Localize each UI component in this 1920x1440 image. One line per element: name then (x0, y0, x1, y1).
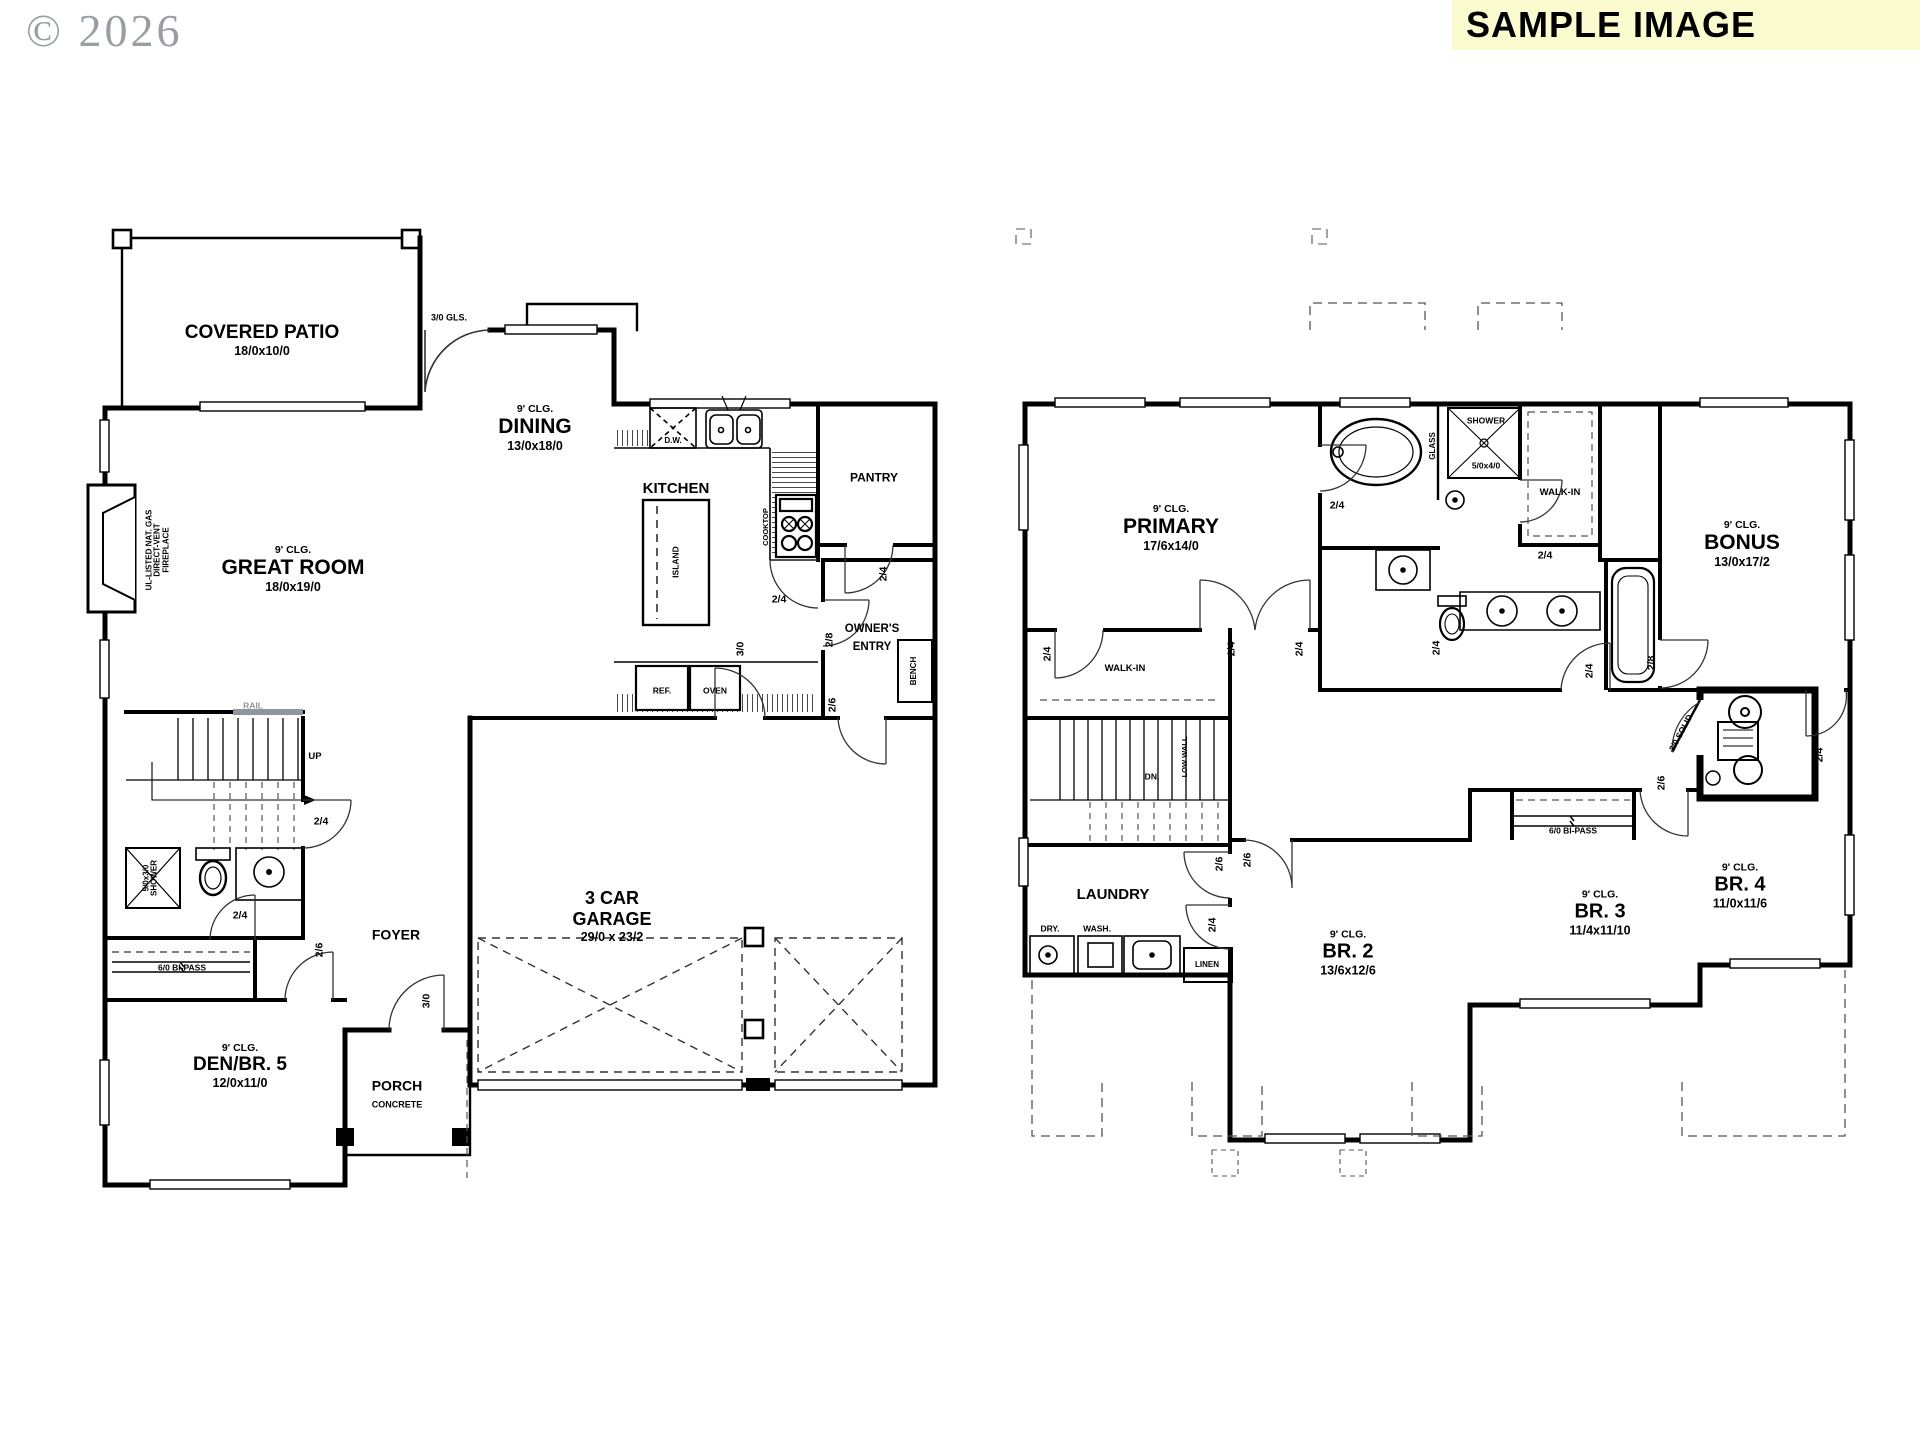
room-label-walkin2: WALK-IN (1105, 664, 1146, 674)
door-label-wc: 2/4 (1431, 641, 1442, 656)
room-label-bonus: 9' CLG. BONUS 13/0x17/2 (1704, 519, 1780, 569)
room-label-laundry: LAUNDRY (1077, 887, 1150, 903)
door-label-walkin2: 2/4 (1042, 647, 1053, 662)
door-label-br3: 2/6 (1656, 776, 1667, 791)
door-label-bath-hall: 2/4 (1584, 664, 1595, 679)
room-label-br3: 9' CLG. BR. 3 11/4x11/10 (1569, 889, 1630, 938)
low-wall-label: LOW WALL (1181, 737, 1189, 778)
room-label-br4: 9' CLG. BR. 4 11/0x11/6 (1713, 862, 1767, 911)
bipass-label-br3: 6/0 BI-PASS (1549, 827, 1597, 836)
door-label-bonus: 2/8 (1646, 656, 1657, 671)
door-label-primary-right: 2/4 (1294, 642, 1305, 657)
floor-plan-page: © 2026 SAMPLE IMAGE COVERED PATIO 18/0x1… (0, 0, 1920, 1440)
room-label-walkin-primary: WALK-IN (1540, 488, 1581, 498)
door-label-br4: 2/4 (1814, 748, 1825, 763)
door-label-walkin-primary: 2/4 (1538, 550, 1553, 561)
dryer-label: DRY. (1040, 925, 1059, 934)
shower-label: SHOWER (1467, 417, 1505, 426)
room-label-primary: 9' CLG. PRIMARY 17/6x14/0 (1123, 503, 1219, 553)
door-label-br2: 2/6 (1242, 853, 1253, 868)
floor2-labels: 9' CLG. PRIMARY 17/6x14/0 2/4 2/4 2/4 GL… (0, 0, 1920, 1440)
door-label-laundry: 2/4 (1207, 918, 1218, 933)
shower-dims-label: 5/0x4/0 (1472, 462, 1500, 471)
washer-label: WASH. (1083, 925, 1111, 934)
door-label-mech-solid: 3/0 SOLID (1668, 713, 1695, 753)
door-label-stairhall2: 2/6 (1214, 857, 1225, 872)
door-label-primary-left: 2/4 (1226, 642, 1237, 657)
door-label-primary-bath: 2/4 (1330, 500, 1345, 511)
dn-label: DN. (1145, 773, 1160, 782)
room-label-br2: 9' CLG. BR. 2 13/6x12/6 (1320, 929, 1376, 978)
linen-label: LINEN (1195, 961, 1219, 969)
glass-label: GLASS (1429, 432, 1437, 460)
